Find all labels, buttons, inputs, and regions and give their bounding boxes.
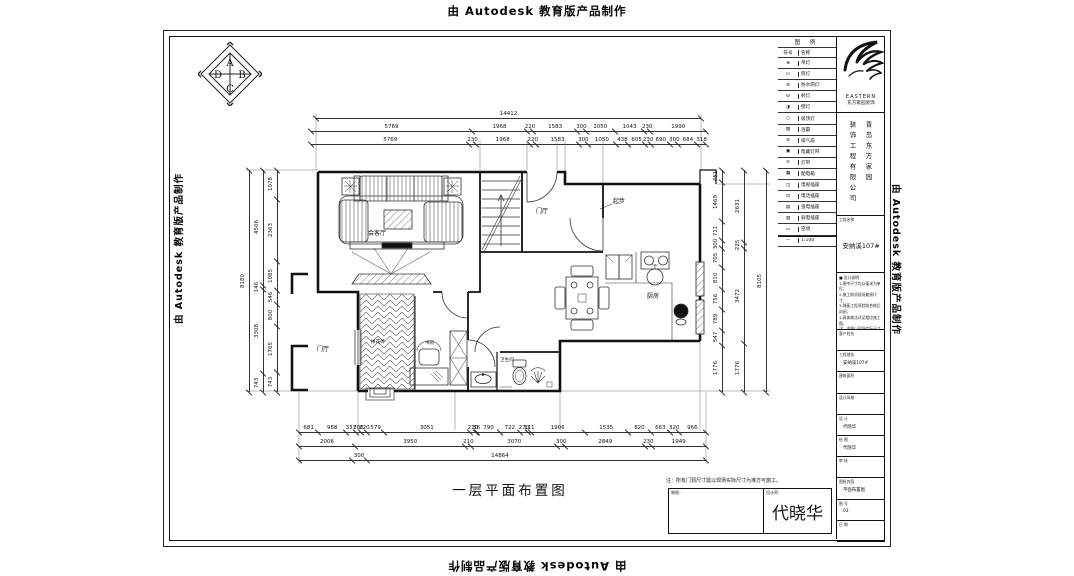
legend-name: 电视插座 [799, 182, 836, 188]
company-logo-cell: EASTERN 东方家园装饰 [837, 36, 885, 113]
dim-right-inner-line [722, 170, 723, 392]
dim-top-row3-value: 1583 [551, 137, 565, 143]
legend-symbol: ▦ [778, 171, 799, 176]
titleblock-field-value: 代晓华 [843, 445, 856, 451]
dim-top-row3-value: 230 [467, 137, 478, 143]
dim-right-mid-value: 2631 [735, 199, 741, 213]
dim-top-row2-value: 1050 [593, 124, 607, 130]
dim-right-mid-value: 3472 [735, 289, 741, 303]
legend-name: 筒灯 [799, 71, 836, 77]
legend-header: 图 例 [778, 36, 836, 48]
legend-symbol: ≡ [778, 160, 799, 165]
dim-left-outer-line [249, 170, 250, 392]
titleblock-field: 绘 图代晓华 [837, 436, 885, 457]
signature-left-label: 制图： [671, 490, 683, 496]
dim-top-row3-value: 220 [528, 137, 539, 143]
titleblock-field-label: 审 核 [839, 458, 848, 464]
dim-top-row2-value: 220 [525, 124, 536, 130]
dim-top-row3-value: 1050 [595, 137, 609, 143]
dim-right-inner-value: 810 [713, 273, 719, 284]
dim-left-mid-value: 4506 [254, 220, 260, 234]
project-name-value: 安纳溪107# [837, 240, 885, 250]
design-note-line: 1.图中尺寸均以毫米为单位； [839, 281, 883, 292]
dim-left-mid-value: 3308 [254, 324, 260, 338]
titleblock-field-label: 图 号 [839, 501, 848, 507]
legend-subheader: 符号名称 [778, 48, 836, 58]
legend-name: 吊灯 [799, 60, 836, 66]
titleblock-field: 图 号03 [837, 500, 885, 521]
legend-symbol: ◫ [778, 183, 799, 188]
dim-bottom-row2-value: 1949 [672, 439, 686, 445]
dim-right-inner-value: 300 [713, 239, 719, 250]
dim-top-row2-value: 1043 [622, 124, 636, 130]
titleblock-field-value: 安纳溪107# [843, 360, 868, 366]
titleblock-field: 建筑面积 [837, 372, 885, 393]
legend-name: 1:100 [799, 238, 836, 243]
dim-top-total-line [316, 118, 701, 119]
dim-bottom-row2-value: 230 [643, 439, 654, 445]
dim-top-row3-value: 300 [669, 137, 680, 143]
dim-right-inner-value: 789 [713, 314, 719, 325]
dim-bottom-row2-value: 2849 [598, 439, 612, 445]
dim-top-row3-value: 5769 [383, 137, 397, 143]
signature-left-cell: 制图： [669, 489, 764, 533]
dim-right-mid-value: 225 [735, 240, 741, 251]
dim-left-inner-value: 1085 [268, 269, 274, 283]
legend-row: —1:100 [778, 236, 836, 247]
dim-top-row2-line [311, 131, 706, 132]
dim-left-outer-value: 8180 [240, 274, 246, 288]
legend-symbol: ▥ [778, 216, 799, 221]
dim-bottom-row2-value: 3950 [403, 439, 417, 445]
legend-name: 电话插座 [799, 193, 836, 199]
titleblock-field-label: 客户姓名 [839, 331, 854, 337]
titleblock-field: 设 计代晓华 [837, 415, 885, 436]
legend-symbol: ○ [778, 116, 799, 121]
legend-symbol: ▤ [778, 205, 799, 210]
legend-row: ▥弱电插座 [778, 213, 836, 224]
designer-signature: 代晓华 [764, 499, 831, 524]
dim-bottom-total-line [299, 460, 706, 461]
eastern-logo [837, 36, 885, 94]
dim-left-inner-value: 546 [268, 292, 274, 303]
dim-right-inner-value: 451 [713, 171, 719, 182]
dim-bottom-row1-value: 320 [669, 425, 680, 431]
design-note-line: 2.施工前须现场复核尺寸； [839, 292, 883, 303]
dim-bottom-row1-value: 1906 [551, 425, 565, 431]
titleblock-fields: 客户姓名工程地址安纳溪107#建筑面积设计风格设 计代晓华绘 图代晓华审 核图纸… [837, 330, 885, 542]
dim-right-mid-value: 1776 [735, 361, 741, 375]
titleblock-column: EASTERN 东方家园装饰 青岛东方家园 装饰工程有限公司 工程名称 安纳溪1… [836, 36, 885, 539]
legend-row: ▤强电插座 [778, 202, 836, 213]
dim-right-inner-value: 1776 [713, 361, 719, 375]
legend-symbol: — [778, 238, 799, 243]
dim-top-row2-value: 5769 [385, 124, 399, 130]
legend-row: ∅筒灯 [778, 69, 836, 80]
dim-top-row3-value: 438 [617, 137, 628, 143]
dim-right-outer-value: 8105 [757, 274, 763, 288]
legend-table: 图 例符号名称⊕吊灯∅筒灯⊘防水筒灯Θ射灯◑壁灯○吸顶灯▨浴霸⊖排气扇▣暗藏灯带… [778, 36, 837, 237]
legend-name: 浴霸 [799, 127, 836, 133]
signature-right-cell: 设计师： 代晓华 [764, 489, 831, 533]
dim-top-row2-value: 300 [576, 124, 587, 130]
titleblock-field-label: 日 期 [839, 522, 848, 528]
legend-symbol: ⊕ [778, 61, 799, 66]
titleblock-field-label: 图纸内容 [839, 479, 854, 485]
dim-top-row3-value: 690 [656, 137, 667, 143]
dim-bottom-row1-value: 681 [303, 425, 314, 431]
legend-symbol: ▭ [778, 227, 799, 232]
legend-name: 吸顶灯 [799, 116, 836, 122]
dim-bottom-row1-value: 722 [505, 425, 516, 431]
legend-row: ◑壁灯 [778, 102, 836, 113]
titleblock-field-value: 代晓华 [843, 424, 856, 430]
dim-top-row3-value: 684 [683, 137, 694, 143]
dim-bottom-row2-value: 3070 [507, 439, 521, 445]
legend-symbol: ⊖ [778, 138, 799, 143]
dim-top-row2-value: 230 [642, 124, 653, 130]
legend-row: ◫电视插座 [778, 180, 836, 191]
dim-top-row2-value: 1583 [548, 124, 562, 130]
dim-bottom-row1-value: 111 [524, 425, 535, 431]
dim-bottom-row1-value: 988 [327, 425, 338, 431]
dim-bottom-row2-value: 2006 [320, 439, 334, 445]
dim-top-row3-value: 230 [643, 137, 654, 143]
legend-symbol: ∅ [778, 72, 799, 77]
dim-right-outer-line [766, 170, 767, 392]
titleblock-field: 日 期 [837, 521, 885, 542]
dim-bottom-row1-value: 820 [634, 425, 645, 431]
dim-right-inner-value: 711 [713, 226, 719, 237]
dim-left-inner-value: 1765 [268, 342, 274, 356]
drawing-title: 一层平面布置图 [420, 479, 600, 499]
legend-name: 暗藏灯带 [799, 149, 836, 155]
dim-top-total-value: 14412 [500, 111, 518, 117]
cad-sheet: 由 Autodesk 教育版产品制作 由 Autodesk 教育版产品制作 由 … [0, 0, 1074, 576]
titleblock-field-label: 设计风格 [839, 395, 854, 401]
brand-name-cn: 东方家园装饰 [837, 100, 885, 106]
titleblock-field: 图纸内容平面布置图 [837, 478, 885, 499]
titleblock-field: 设计风格 [837, 394, 885, 415]
signature-table: 制图： 设计师： 代晓华 [668, 488, 832, 534]
project-name-label: 工程名称 [839, 217, 854, 223]
legend-symbol: ⊘ [778, 83, 799, 88]
legend-row: ▭空调 [778, 224, 836, 235]
legend-row: ▨浴霸 [778, 125, 836, 136]
dim-left-mid-value: 743 [254, 377, 260, 388]
dim-left-mid-line [263, 170, 264, 392]
dim-bottom-total-value: 14864 [491, 453, 509, 459]
dim-right-mid-line [744, 170, 745, 392]
project-name-cell: 工程名称 安纳溪107# [837, 216, 885, 273]
legend-row: ⊡电话插座 [778, 191, 836, 202]
titleblock-field-label: 设 计 [839, 416, 848, 422]
legend-symbol: ⊡ [778, 194, 799, 199]
dim-left-inner-value: 743 [268, 377, 274, 388]
dim-right-inner-value: 1469 [713, 195, 719, 209]
legend-symbol: ▣ [778, 149, 799, 154]
dim-bottom-row1-value: 220 [359, 425, 370, 431]
dim-bottom-row1-value: 56 [473, 425, 480, 431]
titleblock-field-value: 03 [843, 509, 849, 514]
signature-right-label: 设计师： [766, 490, 782, 496]
legend-symbol: ▨ [778, 127, 799, 132]
titleblock-field: 客户姓名 [837, 330, 885, 351]
legend-name: 配电箱 [799, 171, 836, 177]
legend-name: 排气扇 [799, 138, 836, 144]
legend-name: 壁灯 [799, 104, 836, 110]
company-name-cell: 青岛东方家园 装饰工程有限公司 [837, 113, 885, 216]
dim-top-row2-value: 1990 [671, 124, 685, 130]
dim-bottom-row1-value: 966 [687, 425, 698, 431]
dim-left-inner-line [277, 170, 278, 392]
titleblock-field: 工程地址安纳溪107# [837, 351, 885, 372]
titleblock-field-label: 工程地址 [839, 352, 854, 358]
titleblock-field-label: 建筑面积 [839, 373, 854, 379]
legend-name: 弱电插座 [799, 215, 836, 221]
dim-top-row3-value: 1968 [496, 137, 510, 143]
legend-name: 灯带 [799, 160, 836, 166]
dim-top-row3-value: 300 [578, 137, 589, 143]
company-name-left: 装饰工程有限公司 [847, 121, 857, 205]
legend-row: ○吸顶灯 [778, 113, 836, 124]
dim-bottom-small-value: 300 [354, 453, 365, 459]
legend-symbol: ◑ [778, 105, 799, 110]
dim-bottom-row1-value: 790 [483, 425, 494, 431]
dim-top-row3-value: 318 [696, 137, 707, 143]
dim-top-row2-value: 1968 [492, 124, 506, 130]
dim-left-inner-value: 1078 [268, 177, 274, 191]
legend-symbol: Θ [778, 94, 799, 99]
legend-row: ≡灯带 [778, 158, 836, 169]
dim-top-row3-value: 605 [631, 137, 642, 143]
legend-row: ⊘防水筒灯 [778, 80, 836, 91]
legend-row: ⊕吊灯 [778, 58, 836, 69]
dim-bottom-row2-value: 210 [463, 439, 474, 445]
dim-bottom-row2-value: 300 [556, 439, 567, 445]
legend-name: 强电插座 [799, 204, 836, 210]
legend-row: ▦配电箱 [778, 169, 836, 180]
legend-name: 空调 [799, 226, 836, 232]
dim-bottom-row1-value: 1535 [599, 425, 613, 431]
dim-left-mid-value: 146 [254, 282, 260, 293]
design-notes-cell: ■ 设计说明：1.图中尺寸均以毫米为单位；2.施工前须现场复核尺寸；3.隐蔽工程… [837, 273, 885, 330]
legend-row: ⊖排气扇 [778, 136, 836, 147]
dim-right-inner-value: 705 [713, 252, 719, 263]
design-note-line: 4.具体做法详见相应施工图。 [839, 315, 883, 326]
footer-note: 注：所有门洞尺寸需以现场实际尺寸为准方可施工。 [666, 477, 781, 484]
dim-right-inner-value: 756 [713, 294, 719, 305]
dim-bottom-row1-value: 663 [655, 425, 666, 431]
dim-bottom-row1-value: 579 [370, 425, 381, 431]
dim-left-inner-value: 2363 [268, 223, 274, 237]
company-name-right: 青岛东方家园 [863, 121, 873, 184]
titleblock-field: 审 核 [837, 457, 885, 478]
legend-name: 防水筒灯 [799, 82, 836, 88]
titleblock-field-value: 平面布置图 [843, 487, 865, 493]
legend-row: Θ射灯 [778, 91, 836, 102]
dim-bottom-row1-value: 3051 [420, 425, 434, 431]
dim-right-inner-value: 547 [713, 332, 719, 343]
dim-left-inner-value: 800 [268, 310, 274, 321]
legend-name: 射灯 [799, 93, 836, 99]
design-note-line: 3.隐蔽工程须验收合格后封闭； [839, 303, 883, 314]
titleblock-field-label: 绘 图 [839, 437, 848, 443]
legend-row: ▣暗藏灯带 [778, 147, 836, 158]
